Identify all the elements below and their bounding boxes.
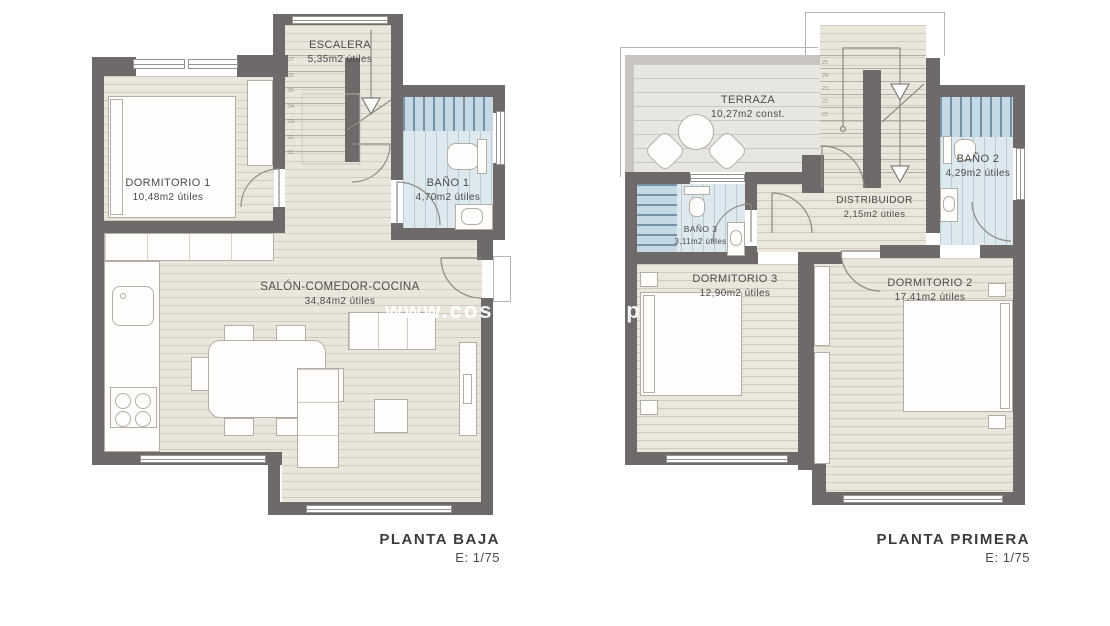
room-name: DORMITORIO 3 [660, 272, 810, 287]
room-name: DORMITORIO 1 [98, 176, 238, 191]
plan-scale: E: 1/75 [830, 550, 1030, 565]
room-label-terraza: TERRAZA 10,27m2 const. [688, 93, 808, 122]
floorplan-canvas: ESCALERA 5,35m2 útiles DORMITORIO 1 10,4… [0, 0, 1110, 626]
stair-tread-number: 22 [822, 99, 828, 105]
room-area: 10,27m2 const. [688, 108, 808, 122]
room-label-bano2: BAÑO 2 4,29m2 útiles [928, 152, 1028, 181]
room-label-dormitorio3: DORMITORIO 3 12,90m2 útiles [660, 272, 810, 301]
room-label-escalera: ESCALERA 5,35m2 útiles [290, 38, 390, 67]
room-label-bano1: BAÑO 1 4,70m2 útiles [398, 176, 498, 205]
stair-tread-number: 22 [288, 135, 294, 141]
room-area: 17,41m2 útiles [855, 291, 1005, 305]
room-name: BAÑO 3 [648, 224, 753, 236]
room-area: 12,90m2 útiles [660, 287, 810, 301]
stair-tread-number: 24 [288, 104, 294, 110]
stair-tread-number: 25 [288, 88, 294, 94]
room-area: 4,70m2 útiles [398, 191, 498, 205]
room-label-dormitorio1: DORMITORIO 1 10,48m2 útiles [98, 176, 238, 205]
plan-title: PLANTA PRIMERA [830, 531, 1030, 548]
stair-tread-number: 27 [288, 57, 294, 63]
stair-tread-number: 23 [822, 86, 828, 92]
stair-tread-number: 21 [288, 150, 294, 156]
plan-scale: E: 1/75 [300, 550, 500, 565]
room-name: BAÑO 2 [928, 152, 1028, 167]
room-name: ESCALERA [290, 38, 390, 53]
room-area: 3,11m2 útiles [648, 236, 753, 247]
plan-title: PLANTA BAJA [300, 531, 500, 548]
room-area: 10,48m2 útiles [98, 191, 238, 205]
plan-title-block: PLANTA PRIMERA E: 1/75 [830, 531, 1030, 565]
stair-tread-number: 25 [822, 60, 828, 66]
stair-tread-number: 26 [288, 73, 294, 79]
watermark: sp [612, 298, 642, 324]
room-area: 2,15m2 útiles [812, 208, 937, 221]
room-name: BAÑO 1 [398, 176, 498, 191]
room-label-bano3: BAÑO 3 3,11m2 útiles [648, 224, 753, 247]
room-area: 5,35m2 útiles [290, 53, 390, 67]
stair-tread-number: 23 [288, 119, 294, 125]
room-label-distribuidor: DISTRIBUIDOR 2,15m2 útiles [812, 194, 937, 221]
stair-tread-number: 21 [822, 112, 828, 118]
watermark: www.costa [385, 298, 517, 324]
plan-title-block: PLANTA BAJA E: 1/75 [300, 531, 500, 565]
room-label-dormitorio2: DORMITORIO 2 17,41m2 útiles [855, 276, 1005, 305]
room-name: DISTRIBUIDOR [812, 194, 937, 208]
room-name: DORMITORIO 2 [855, 276, 1005, 291]
stair-tread-number: 24 [822, 73, 828, 79]
room-name: TERRAZA [688, 93, 808, 108]
room-area: 4,29m2 útiles [928, 167, 1028, 181]
room-name: SALÓN-COMEDOR-COCINA [230, 279, 450, 295]
